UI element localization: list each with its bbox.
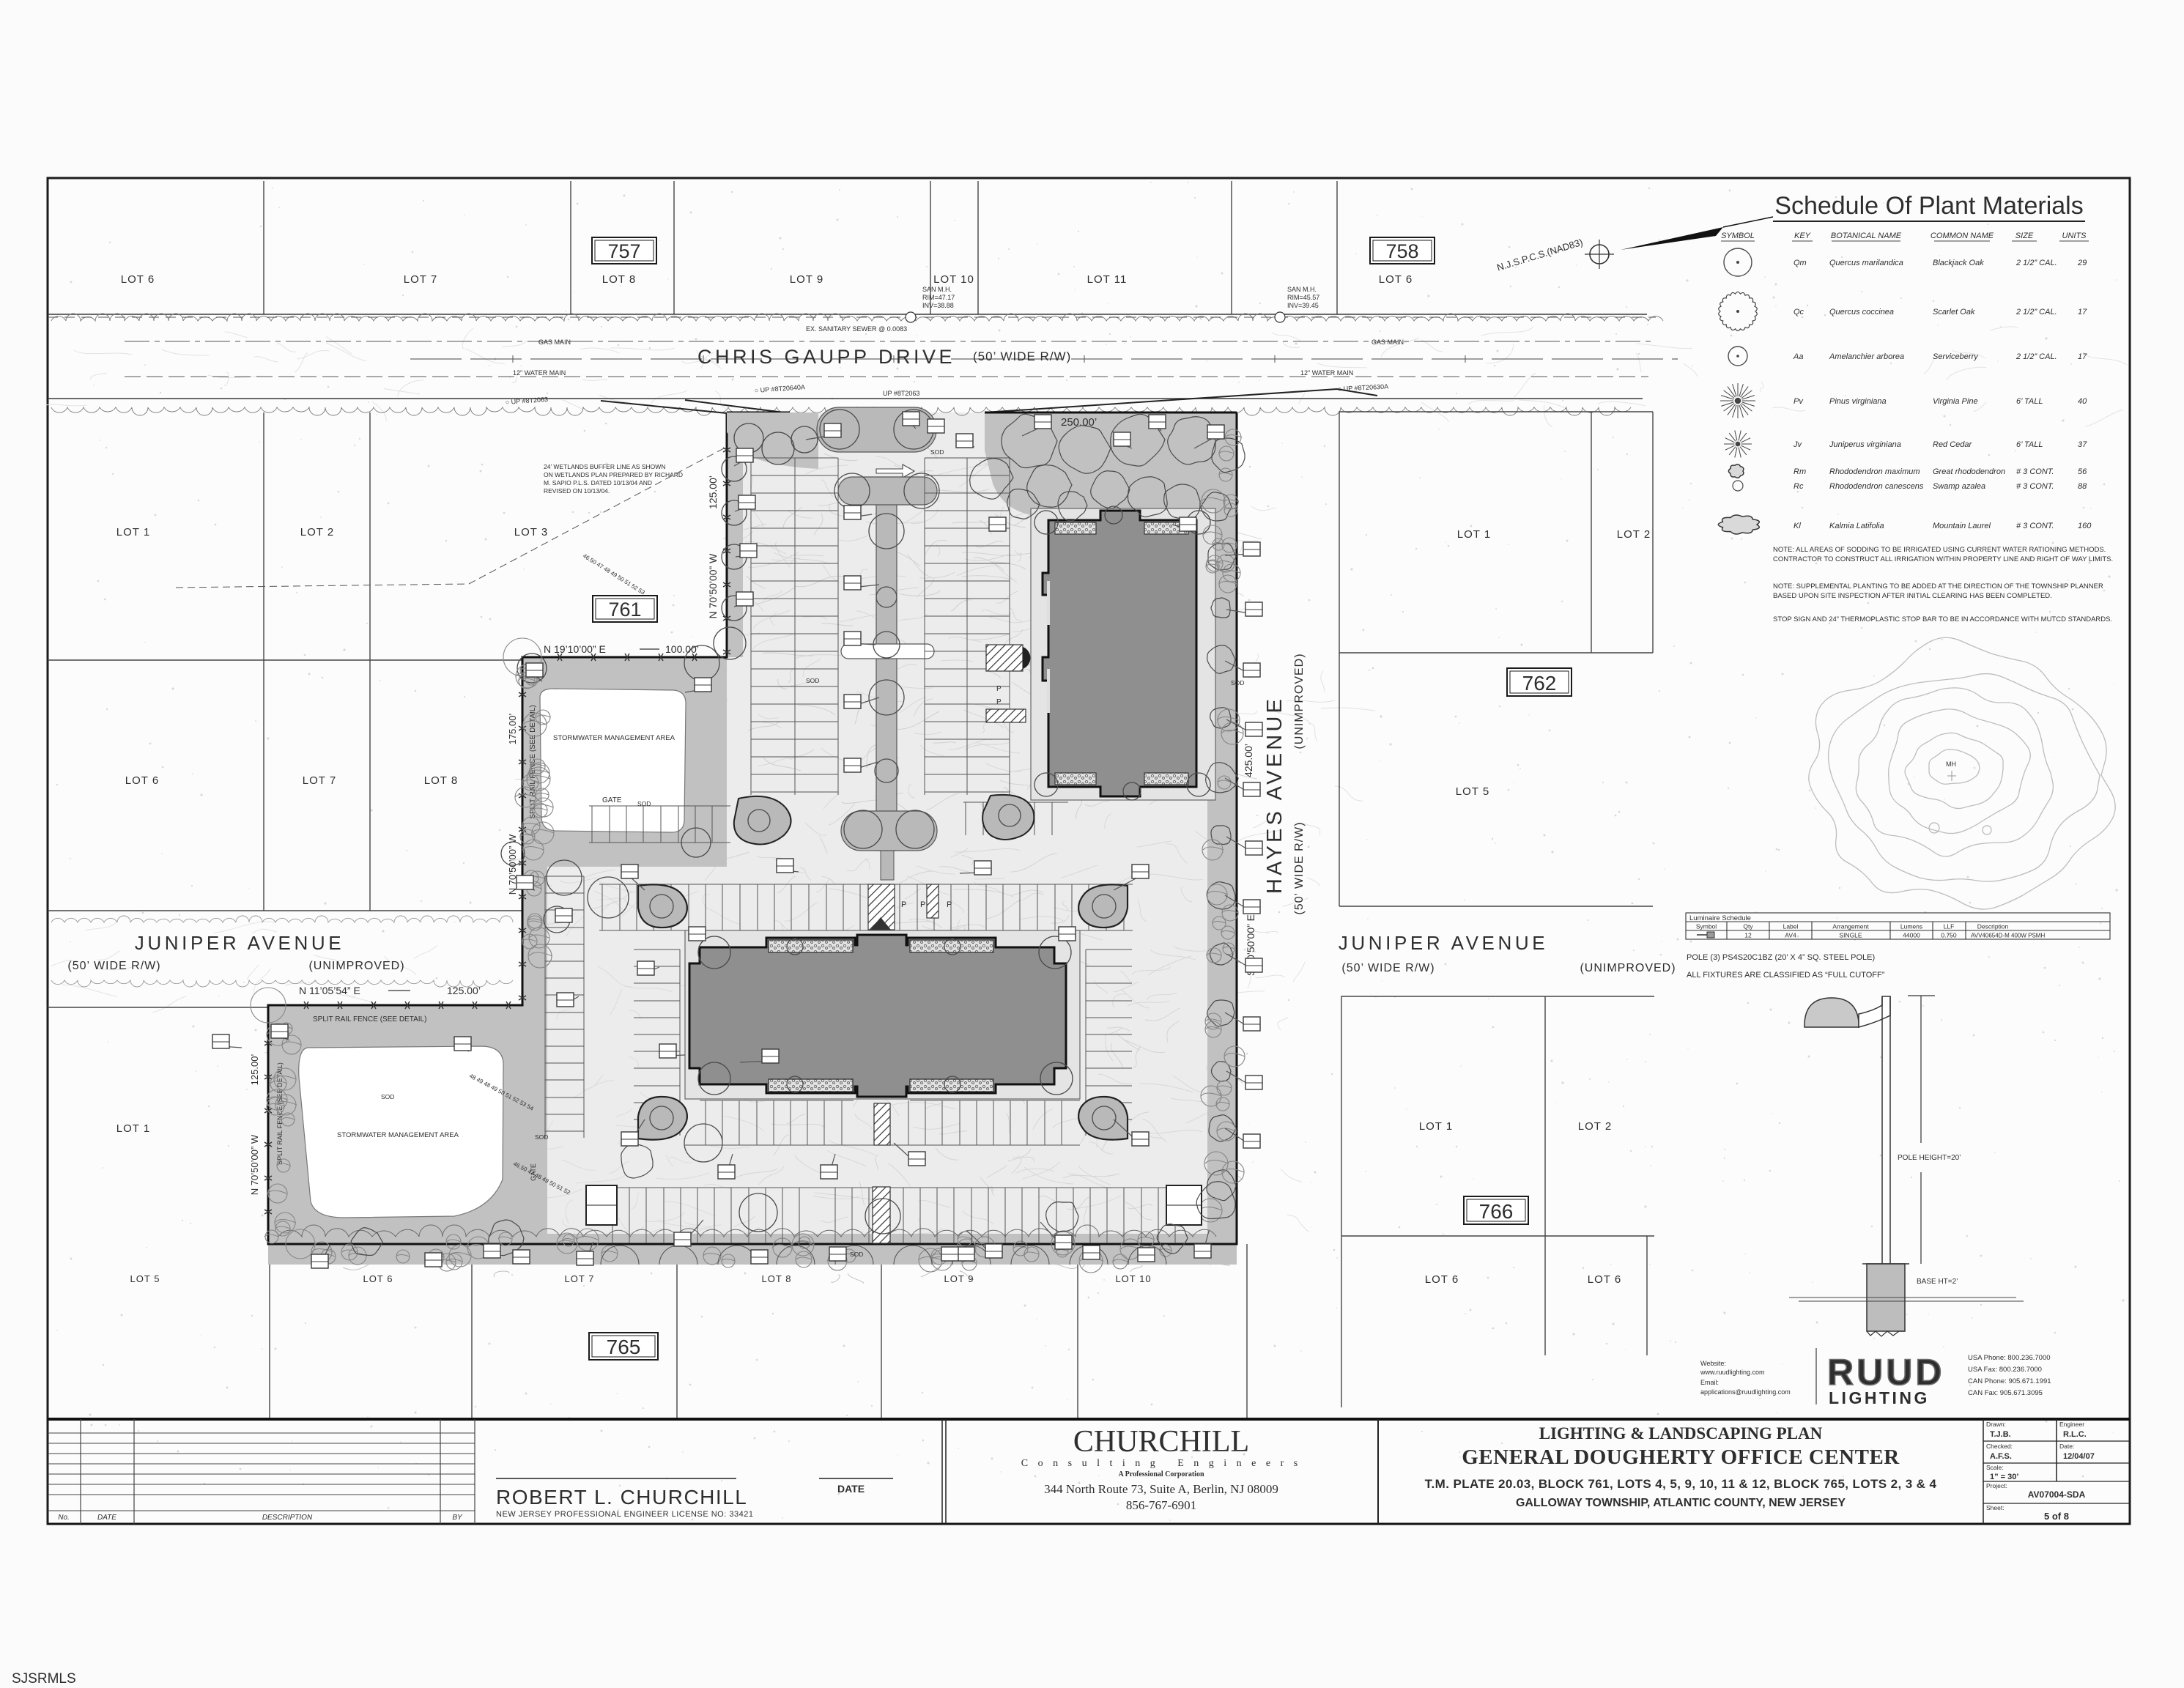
svg-text:Qm: Qm <box>1794 259 1807 267</box>
svg-text:425.00’: 425.00’ <box>1243 744 1254 777</box>
svg-text:758: 758 <box>1385 240 1418 262</box>
svg-text:LOT 5: LOT 5 <box>130 1273 160 1284</box>
svg-text:RIM=45.57: RIM=45.57 <box>1287 294 1319 301</box>
svg-text:BOTANICAL NAME: BOTANICAL NAME <box>1831 232 1902 240</box>
svg-text:(50’ WIDE R/W): (50’ WIDE R/W) <box>1293 821 1306 914</box>
svg-text:Description: Description <box>1977 923 2009 930</box>
svg-text:Rc: Rc <box>1794 482 1804 491</box>
svg-text:LIGHTING & LANDSCAPING PLAN: LIGHTING & LANDSCAPING PLAN <box>1539 1424 1823 1443</box>
svg-text:SPLIT RAIL FENCE (SEE DETAIL): SPLIT RAIL FENCE (SEE DETAIL) <box>313 1015 426 1023</box>
svg-text:RIM=47.17: RIM=47.17 <box>922 294 955 301</box>
svg-text:(50’ WIDE R/W): (50’ WIDE R/W) <box>67 960 160 972</box>
svg-text:LOT 7: LOT 7 <box>404 273 437 286</box>
svg-text:Website:: Website: <box>1700 1360 1726 1367</box>
svg-text:GENERAL DOUGHERTY OFFICE CENTE: GENERAL DOUGHERTY OFFICE CENTER <box>1462 1445 1900 1469</box>
svg-text:INV=39.45: INV=39.45 <box>1287 302 1319 309</box>
svg-text:USA Fax: 800.236.7000: USA Fax: 800.236.7000 <box>1968 1366 2042 1374</box>
svg-text:AV07004-SDA: AV07004-SDA <box>2028 1489 2086 1500</box>
svg-text:P: P <box>947 900 952 909</box>
svg-text:Lumens: Lumens <box>1900 923 1922 930</box>
svg-text:P: P <box>920 900 925 909</box>
svg-text:RUUD: RUUD <box>1827 1352 1944 1393</box>
svg-text:SOD: SOD <box>637 800 651 807</box>
svg-text:www.ruudlighting.com: www.ruudlighting.com <box>1700 1369 1765 1376</box>
svg-text:BASE HT=2’: BASE HT=2’ <box>1917 1278 1958 1286</box>
svg-text:SAN M.H.: SAN M.H. <box>922 286 952 293</box>
svg-text:LOT 7: LOT 7 <box>565 1273 595 1284</box>
svg-text:Scarlet Oak: Scarlet Oak <box>1933 308 1975 316</box>
svg-text:ROBERT L. CHURCHILL: ROBERT L. CHURCHILL <box>496 1486 747 1509</box>
svg-text:GAS MAIN: GAS MAIN <box>538 338 571 346</box>
svg-text:LOT 1: LOT 1 <box>1419 1120 1453 1133</box>
svg-text:N 70’50’00” W: N 70’50’00” W <box>707 553 719 618</box>
svg-text:125.00’: 125.00’ <box>249 1054 260 1086</box>
svg-text:NOTE: SUPPLEMENTAL PLANTING TO: NOTE: SUPPLEMENTAL PLANTING TO BE ADDED … <box>1773 582 2103 591</box>
svg-text:Pv: Pv <box>1794 397 1804 406</box>
svg-text:SOD: SOD <box>1231 679 1244 686</box>
svg-text:Date:: Date: <box>2059 1443 2074 1450</box>
svg-text:17: 17 <box>2078 308 2087 316</box>
svg-text:Sheet:: Sheet: <box>1986 1504 2005 1511</box>
svg-text:Project:: Project: <box>1986 1482 2007 1489</box>
svg-text:Engineer: Engineer <box>2059 1421 2084 1428</box>
svg-text:Schedule Of Plant Materials: Schedule Of Plant Materials <box>1774 192 2083 220</box>
svg-text:DATE: DATE <box>837 1483 865 1495</box>
svg-text:CHRIS GAUPP DRIVE: CHRIS GAUPP DRIVE <box>697 346 955 368</box>
svg-text:P: P <box>996 698 1002 706</box>
svg-text:A Professional Corporation: A Professional Corporation <box>1118 1470 1204 1478</box>
svg-text:Aa: Aa <box>1793 352 1803 361</box>
svg-text:LOT 8: LOT 8 <box>602 273 636 286</box>
svg-text:Rhododendron maximum: Rhododendron maximum <box>1829 467 1920 476</box>
svg-text:HAYES AVENUE: HAYES AVENUE <box>1263 696 1287 894</box>
svg-text:125.00’: 125.00’ <box>707 475 719 509</box>
svg-text:SOD: SOD <box>850 1251 863 1258</box>
svg-text:344 North Route 73, Suite A, B: 344 North Route 73, Suite A, Berlin, NJ … <box>1044 1482 1278 1496</box>
svg-text:LOT 6: LOT 6 <box>121 273 155 286</box>
svg-text:COMMON NAME: COMMON NAME <box>1931 232 1994 240</box>
svg-text:Rhododendron canescens: Rhododendron canescens <box>1829 482 1924 491</box>
svg-text:LOT 1: LOT 1 <box>1457 528 1491 541</box>
svg-text:56: 56 <box>2078 467 2087 476</box>
svg-text:757: 757 <box>607 240 640 262</box>
svg-text:SOD: SOD <box>535 1133 548 1141</box>
svg-text:KEY: KEY <box>1794 232 1811 240</box>
svg-text:LOT 6: LOT 6 <box>1425 1273 1459 1286</box>
svg-text:856-767-6901: 856-767-6901 <box>1126 1498 1196 1512</box>
svg-text:Great rhododendron: Great rhododendron <box>1933 467 2005 476</box>
svg-text:6’ TALL: 6’ TALL <box>2016 440 2043 449</box>
svg-text:175.00’: 175.00’ <box>507 714 518 745</box>
svg-text:Amelanchier arborea: Amelanchier arborea <box>1829 352 1904 361</box>
svg-text:12: 12 <box>1744 932 1752 939</box>
svg-text:SOD: SOD <box>930 448 944 456</box>
svg-text:12/04/07: 12/04/07 <box>2063 1452 2095 1461</box>
svg-text:USA Phone: 800.236.7000: USA Phone: 800.236.7000 <box>1968 1354 2051 1362</box>
svg-text:761: 761 <box>608 599 641 621</box>
svg-text:LOT 2: LOT 2 <box>1617 528 1651 541</box>
svg-text:Symbol: Symbol <box>1696 923 1717 930</box>
svg-text:LIGHTING: LIGHTING <box>1829 1388 1930 1407</box>
svg-text:Arrangement: Arrangement <box>1832 923 1869 930</box>
svg-text:2 1/2” CAL.: 2 1/2” CAL. <box>2015 259 2057 267</box>
svg-text:Mountain Laurel: Mountain Laurel <box>1933 522 1991 530</box>
svg-text:Label: Label <box>1783 923 1799 930</box>
svg-text:BASED UPON SITE INSPECTION AFT: BASED UPON SITE INSPECTION AFTER INITIAL… <box>1773 592 2052 600</box>
svg-text:37: 37 <box>2078 440 2087 449</box>
svg-text:NOTE: ALL AREAS OF SODDING TO: NOTE: ALL AREAS OF SODDING TO BE IRRIGAT… <box>1773 546 2106 554</box>
svg-text:SOD: SOD <box>806 677 819 684</box>
svg-text:BY: BY <box>452 1514 463 1522</box>
svg-text:GATE: GATE <box>602 796 622 804</box>
svg-text:LOT 10: LOT 10 <box>933 273 974 286</box>
svg-text:LOT 11: LOT 11 <box>1087 273 1128 286</box>
svg-text:REVISED ON 10/13/04.: REVISED ON 10/13/04. <box>544 487 610 495</box>
svg-text:44000: 44000 <box>1903 932 1920 939</box>
svg-text:N 70’50’00” W: N 70’50’00” W <box>249 1134 260 1195</box>
svg-text:Luminaire Schedule: Luminaire Schedule <box>1689 914 1751 922</box>
svg-text:Qc: Qc <box>1794 308 1804 316</box>
svg-text:6’ TALL: 6’ TALL <box>2016 397 2043 406</box>
svg-text:SIZE: SIZE <box>2015 232 2034 240</box>
svg-text:INV=38.88: INV=38.88 <box>922 302 954 309</box>
svg-text:SINGLE: SINGLE <box>1839 932 1862 939</box>
svg-text:R.L.C.: R.L.C. <box>2063 1430 2087 1439</box>
svg-text:POLE (3) PS4S20C1BZ (20’ X 4”: POLE (3) PS4S20C1BZ (20’ X 4” SQ. STEEL … <box>1687 953 1875 962</box>
svg-text:M. SAPIO P.L.S. DATED 10/13/04: M. SAPIO P.L.S. DATED 10/13/04 AND <box>544 479 652 486</box>
svg-text:40: 40 <box>2078 397 2087 406</box>
svg-text:125.00’: 125.00’ <box>447 985 481 996</box>
svg-text:POLE HEIGHT=20’: POLE HEIGHT=20’ <box>1898 1154 1961 1162</box>
svg-text:(50’ WIDE R/W): (50’ WIDE R/W) <box>1341 962 1435 974</box>
svg-text:LOT 2: LOT 2 <box>1578 1120 1612 1133</box>
svg-text:12" WATER MAIN: 12" WATER MAIN <box>513 369 566 377</box>
svg-text:Quercus marilandica: Quercus marilandica <box>1829 259 1903 267</box>
svg-text:2 1/2” CAL.: 2 1/2” CAL. <box>2015 308 2057 316</box>
svg-text:Juniperus virginiana: Juniperus virginiana <box>1829 440 1901 449</box>
svg-text:LOT 3: LOT 3 <box>514 526 548 538</box>
svg-text:T.J.B.: T.J.B. <box>1990 1430 2011 1439</box>
svg-text:Virginia Pine: Virginia Pine <box>1933 397 1978 406</box>
svg-text:AVV40654D-M 400W PSMH: AVV40654D-M 400W PSMH <box>1971 933 2045 939</box>
svg-text:LOT 1: LOT 1 <box>116 1122 150 1135</box>
svg-text:# 3 CONT.: # 3 CONT. <box>2016 522 2054 530</box>
svg-text:CAN Fax: 905.671.3095: CAN Fax: 905.671.3095 <box>1968 1389 2043 1397</box>
svg-text:SOD: SOD <box>381 1093 394 1100</box>
svg-text:No.: No. <box>58 1514 70 1522</box>
svg-text:EX. SANITARY SEWER @ 0.0083: EX. SANITARY SEWER @ 0.0083 <box>806 325 907 333</box>
svg-text:AV4: AV4 <box>1785 932 1796 939</box>
svg-text:Serviceberry: Serviceberry <box>1933 352 1979 361</box>
svg-text:LOT 6: LOT 6 <box>1379 273 1413 286</box>
svg-text:Red Cedar: Red Cedar <box>1933 440 1973 449</box>
svg-text:(UNIMPROVED): (UNIMPROVED) <box>1580 962 1676 974</box>
svg-text:Kalmia Latifolia: Kalmia Latifolia <box>1829 522 1884 530</box>
svg-text:Rm: Rm <box>1794 467 1806 476</box>
svg-text:GALLOWAY TOWNSHIP, ATLANTIC CO: GALLOWAY TOWNSHIP, ATLANTIC COUNTY, NEW … <box>1516 1497 1846 1509</box>
svg-text:MH: MH <box>1946 760 1956 768</box>
svg-text:GATE: GATE <box>530 1163 537 1181</box>
svg-text:88: 88 <box>2078 482 2087 491</box>
svg-text:17: 17 <box>2078 352 2087 361</box>
svg-text:ON WETLANDS PLAN PREPARED BY: ON WETLANDS PLAN PREPARED BY RICHARD <box>544 471 683 478</box>
svg-text:Pinus virginiana: Pinus virginiana <box>1829 397 1887 406</box>
svg-text:Quercus coccinea: Quercus coccinea <box>1829 308 1894 316</box>
svg-text:UNITS: UNITS <box>2062 232 2087 240</box>
svg-text:Blackjack Oak: Blackjack Oak <box>1933 259 1984 267</box>
svg-text:DATE: DATE <box>97 1514 116 1522</box>
svg-text:STORMWATER MANAGEMENT AREA: STORMWATER MANAGEMENT AREA <box>337 1131 459 1139</box>
svg-text:24’ WETLANDS BUFFER LINE AS SH: 24’ WETLANDS BUFFER LINE AS SHOWN <box>544 463 665 470</box>
svg-text:# 3 CONT.: # 3 CONT. <box>2016 467 2054 476</box>
svg-text:SAN M.H.: SAN M.H. <box>1287 286 1317 293</box>
svg-text:CONTRACTOR TO CONSTRUCT ALL IR: CONTRACTOR TO CONSTRUCT ALL IRRIGATION W… <box>1773 555 2113 563</box>
svg-text:LOT 8: LOT 8 <box>424 774 458 787</box>
svg-text:CAN Phone: 905.671.1991: CAN Phone: 905.671.1991 <box>1968 1377 2051 1385</box>
svg-text:160: 160 <box>2078 522 2092 530</box>
svg-text:LOT 8: LOT 8 <box>762 1273 792 1284</box>
svg-text:P: P <box>901 900 906 909</box>
svg-text:LOT 6: LOT 6 <box>1588 1273 1621 1286</box>
svg-text:DESCRIPTION: DESCRIPTION <box>262 1514 313 1522</box>
svg-text:0.750: 0.750 <box>1941 932 1957 939</box>
svg-text:# 3 CONT.: # 3 CONT. <box>2016 482 2054 491</box>
svg-text:2 1/2” CAL.: 2 1/2” CAL. <box>2015 352 2057 361</box>
svg-text:12" WATER MAIN: 12" WATER MAIN <box>1300 369 1353 377</box>
svg-text:ALL FIXTURES ARE CLASSIFIED AS: ALL FIXTURES ARE CLASSIFIED AS “FULL CUT… <box>1687 971 1885 980</box>
svg-text:5 of 8: 5 of 8 <box>2044 1511 2069 1522</box>
svg-text:29: 29 <box>2077 259 2087 267</box>
svg-text:Email:: Email: <box>1700 1379 1719 1386</box>
svg-text:Checked:: Checked: <box>1986 1443 2013 1450</box>
svg-text:LOT 6: LOT 6 <box>125 774 159 787</box>
svg-text:LOT 5: LOT 5 <box>1456 785 1489 798</box>
svg-text:Scale:: Scale: <box>1986 1464 2004 1471</box>
svg-text:Drawn:: Drawn: <box>1986 1421 2006 1428</box>
svg-text:SJSRMLS: SJSRMLS <box>12 1671 76 1687</box>
svg-text:CHURCHILL: CHURCHILL <box>1073 1425 1249 1459</box>
svg-text:STOP SIGN AND 24” THERMOPLASTI: STOP SIGN AND 24” THERMOPLASTIC STOP BAR… <box>1773 615 2112 623</box>
svg-text:GAS MAIN: GAS MAIN <box>1372 338 1404 346</box>
svg-text:C o n s u l t i n g E n g i: C o n s u l t i n g E n g i n e e r s <box>1021 1458 1301 1469</box>
svg-text:Qty: Qty <box>1743 923 1753 930</box>
svg-text:A.F.S.: A.F.S. <box>1990 1452 2012 1461</box>
svg-text:Swamp azalea: Swamp azalea <box>1933 482 1985 491</box>
svg-text:(UNIMPROVED): (UNIMPROVED) <box>308 960 404 972</box>
svg-text:STORMWATER MANAGEMENT AREA: STORMWATER MANAGEMENT AREA <box>553 734 675 742</box>
svg-text:LOT 2: LOT 2 <box>300 526 334 538</box>
svg-text:(UNIMPROVED): (UNIMPROVED) <box>1293 653 1306 749</box>
svg-text:N 19’10’00” E: N 19’10’00” E <box>544 643 606 655</box>
svg-text:UP #8T2063: UP #8T2063 <box>883 390 919 397</box>
svg-text:LOT 9: LOT 9 <box>944 1273 974 1284</box>
svg-text:N 11’05’54” E: N 11’05’54” E <box>299 985 360 996</box>
svg-text:T.M. PLATE 20.03, BLOCK 761, L: T.M. PLATE 20.03, BLOCK 761, LOTS 4, 5, … <box>1425 1477 1937 1491</box>
svg-text:LOT 7: LOT 7 <box>303 774 336 787</box>
svg-text:765: 765 <box>607 1336 641 1358</box>
svg-text:JUNIPER AVENUE: JUNIPER AVENUE <box>135 932 344 954</box>
svg-text:SYMBOL: SYMBOL <box>1721 232 1755 240</box>
svg-text:766: 766 <box>1479 1200 1514 1223</box>
svg-text:LOT 9: LOT 9 <box>790 273 823 286</box>
svg-text:Kl: Kl <box>1794 522 1801 530</box>
svg-text:P: P <box>996 685 1002 693</box>
svg-text:1” = 30’: 1” = 30’ <box>1990 1473 2018 1481</box>
svg-text:100.00’: 100.00’ <box>665 643 699 655</box>
svg-text:Jv: Jv <box>1793 440 1803 449</box>
svg-text:JUNIPER AVENUE: JUNIPER AVENUE <box>1339 932 1548 954</box>
svg-text:LLF: LLF <box>1944 923 1955 930</box>
svg-text:NEW JERSEY PROFESSIONAL ENGINE: NEW JERSEY PROFESSIONAL ENGINEER LICENSE… <box>496 1510 753 1519</box>
svg-text:(50’ WIDE R/W): (50’ WIDE R/W) <box>973 349 1071 363</box>
svg-text:applications@ruudlighting.com: applications@ruudlighting.com <box>1700 1388 1791 1396</box>
svg-text:762: 762 <box>1522 672 1557 695</box>
svg-text:LOT 10: LOT 10 <box>1115 1273 1151 1284</box>
svg-text:LOT 6: LOT 6 <box>363 1273 393 1284</box>
svg-text:LOT 1: LOT 1 <box>116 526 150 538</box>
